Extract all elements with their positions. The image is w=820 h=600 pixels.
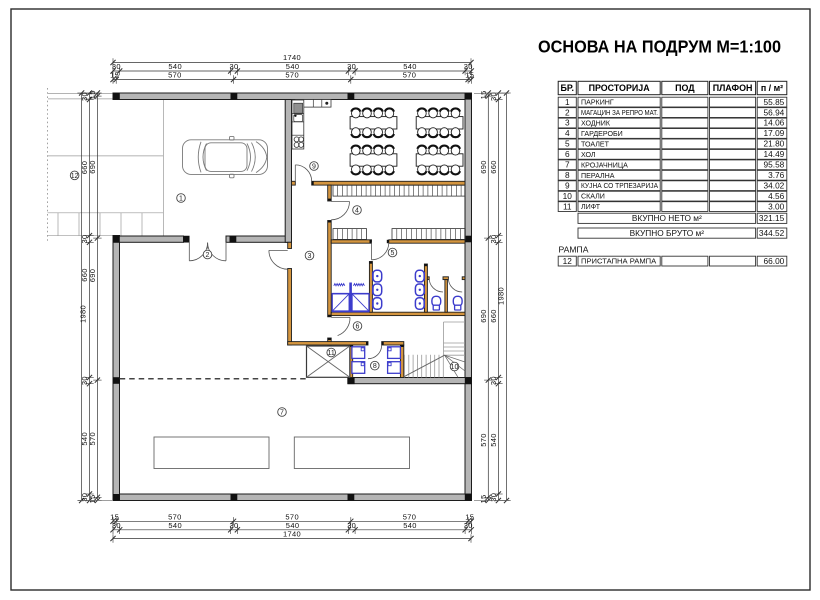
svg-text:ГАРДЕРОБИ: ГАРДЕРОБИ (581, 130, 623, 138)
svg-text:ПРИСТАПНА РАМПА: ПРИСТАПНА РАМПА (581, 257, 657, 266)
svg-text:14.49: 14.49 (764, 149, 785, 159)
svg-text:ПАРКИНГ: ПАРКИНГ (581, 99, 614, 107)
svg-text:15: 15 (88, 90, 97, 99)
svg-text:9: 9 (565, 180, 570, 190)
svg-text:РАМПА: РАМПА (559, 245, 589, 255)
svg-text:ПОД: ПОД (675, 83, 695, 93)
svg-text:1980: 1980 (78, 305, 87, 323)
svg-text:540: 540 (168, 521, 182, 530)
svg-text:11: 11 (328, 350, 335, 357)
svg-text:п / м²: п / м² (761, 83, 783, 93)
svg-text:66.00: 66.00 (764, 256, 785, 266)
svg-text:ХОДНИК: ХОДНИК (581, 120, 611, 128)
svg-text:11: 11 (563, 201, 572, 211)
svg-text:30: 30 (112, 521, 121, 530)
svg-text:30: 30 (80, 234, 89, 243)
svg-text:12: 12 (71, 173, 79, 180)
svg-text:30: 30 (347, 62, 356, 71)
svg-text:540: 540 (403, 521, 417, 530)
svg-text:1740: 1740 (283, 53, 301, 62)
svg-text:570: 570 (479, 433, 488, 447)
svg-text:3.76: 3.76 (768, 170, 785, 180)
svg-text:30: 30 (489, 376, 498, 385)
svg-text:344.52: 344.52 (759, 228, 785, 238)
svg-text:95.58: 95.58 (764, 160, 785, 170)
svg-text:570: 570 (88, 432, 97, 446)
svg-text:56.94: 56.94 (764, 107, 785, 117)
svg-text:570: 570 (285, 71, 299, 80)
svg-text:690: 690 (479, 160, 488, 174)
svg-text:17.09: 17.09 (764, 128, 785, 138)
svg-text:9: 9 (312, 164, 316, 171)
svg-text:3: 3 (308, 253, 312, 260)
svg-text:321.15: 321.15 (759, 213, 785, 223)
svg-text:4.56: 4.56 (768, 191, 785, 201)
svg-text:30: 30 (229, 521, 238, 530)
svg-text:7: 7 (280, 410, 284, 417)
svg-text:СКАЛИ: СКАЛИ (581, 193, 605, 201)
svg-text:570: 570 (403, 71, 417, 80)
svg-text:540: 540 (489, 433, 498, 447)
svg-text:ПЕРАЛНА: ПЕРАЛНА (581, 172, 615, 180)
svg-text:1: 1 (565, 97, 570, 107)
svg-text:ТОАЛЕТ: ТОАЛЕТ (581, 140, 610, 148)
svg-text:14.06: 14.06 (764, 118, 785, 128)
svg-text:ВКУПНО НЕТО м²: ВКУПНО НЕТО м² (632, 213, 702, 223)
svg-text:7: 7 (565, 160, 570, 170)
svg-text:15: 15 (465, 71, 474, 80)
svg-text:12: 12 (563, 256, 573, 266)
svg-text:34.02: 34.02 (764, 180, 785, 190)
svg-text:660: 660 (489, 309, 498, 323)
svg-text:690: 690 (88, 269, 97, 283)
svg-text:10: 10 (563, 191, 573, 201)
svg-text:ОСНОВА НА ПОДРУМ М=1:100: ОСНОВА НА ПОДРУМ М=1:100 (538, 36, 781, 56)
svg-text:30: 30 (80, 376, 89, 385)
svg-text:540: 540 (286, 521, 300, 530)
svg-text:15: 15 (88, 494, 97, 503)
svg-text:ПЛАФОН: ПЛАФОН (713, 83, 753, 93)
svg-text:660: 660 (489, 160, 498, 174)
svg-text:4: 4 (565, 128, 570, 138)
svg-text:15: 15 (479, 90, 488, 99)
svg-text:5: 5 (565, 139, 570, 149)
svg-text:21.80: 21.80 (764, 139, 785, 149)
svg-text:ПРОСТОРИЈА: ПРОСТОРИЈА (589, 83, 651, 93)
svg-text:30: 30 (229, 62, 238, 71)
svg-text:2: 2 (565, 107, 570, 117)
svg-text:БР.: БР. (561, 83, 574, 93)
svg-text:15: 15 (479, 494, 488, 503)
svg-text:ХОЛ: ХОЛ (581, 151, 596, 159)
svg-text:30: 30 (489, 234, 498, 243)
svg-text:КРОЈАЧНИЦА: КРОЈАЧНИЦА (581, 161, 628, 169)
svg-text:1740: 1740 (283, 530, 301, 539)
svg-text:6: 6 (565, 149, 570, 159)
svg-text:2: 2 (206, 252, 210, 259)
svg-text:4: 4 (355, 208, 359, 215)
svg-text:1: 1 (179, 196, 183, 203)
svg-text:ВКУПНО БРУТО м²: ВКУПНО БРУТО м² (630, 228, 705, 238)
svg-text:КУЈНА СО ТРПЕЗАРИЈА: КУЈНА СО ТРПЕЗАРИЈА (581, 182, 658, 190)
svg-text:5: 5 (391, 250, 395, 257)
svg-text:МАГАЦИН ЗА РЕПРО МАТ.: МАГАЦИН ЗА РЕПРО МАТ. (581, 109, 658, 117)
svg-text:690: 690 (479, 309, 488, 323)
svg-text:690: 690 (88, 160, 97, 174)
svg-text:30: 30 (347, 521, 356, 530)
svg-text:3.00: 3.00 (768, 201, 785, 211)
svg-text:8: 8 (565, 170, 570, 180)
svg-text:570: 570 (168, 71, 182, 80)
svg-text:15: 15 (110, 71, 119, 80)
svg-text:ЛИФТ: ЛИФТ (581, 203, 601, 211)
svg-text:30: 30 (464, 521, 473, 530)
svg-text:6: 6 (356, 324, 360, 331)
svg-text:3: 3 (565, 118, 570, 128)
svg-text:1980: 1980 (497, 287, 506, 305)
svg-text:10: 10 (451, 364, 459, 371)
svg-text:8: 8 (373, 363, 377, 370)
svg-text:55.85: 55.85 (764, 97, 785, 107)
